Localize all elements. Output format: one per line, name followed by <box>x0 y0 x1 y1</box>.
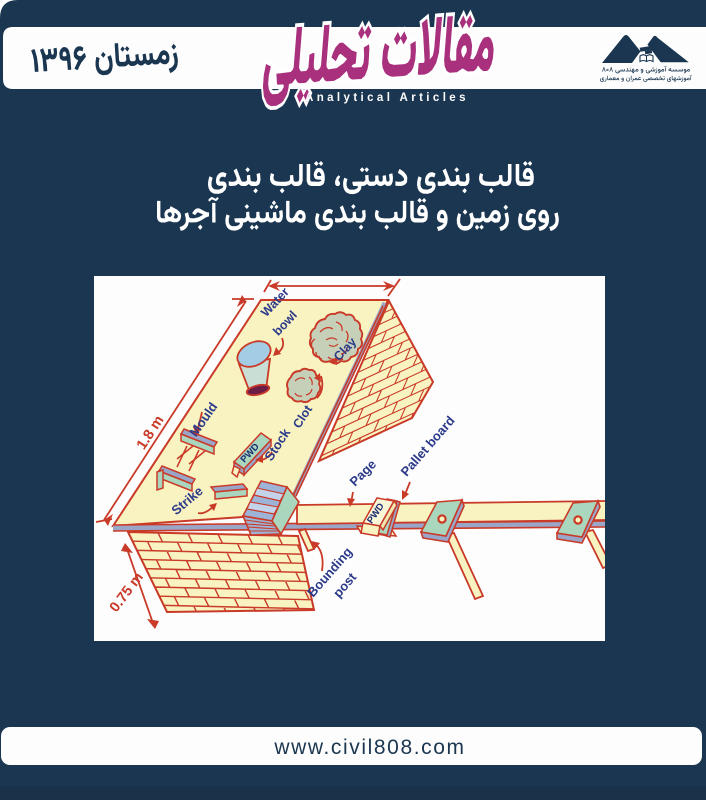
svg-text:www.civil808.com: www.civil808.com <box>273 736 465 759</box>
svg-text:Analytical Articles: Analytical Articles <box>305 92 469 104</box>
